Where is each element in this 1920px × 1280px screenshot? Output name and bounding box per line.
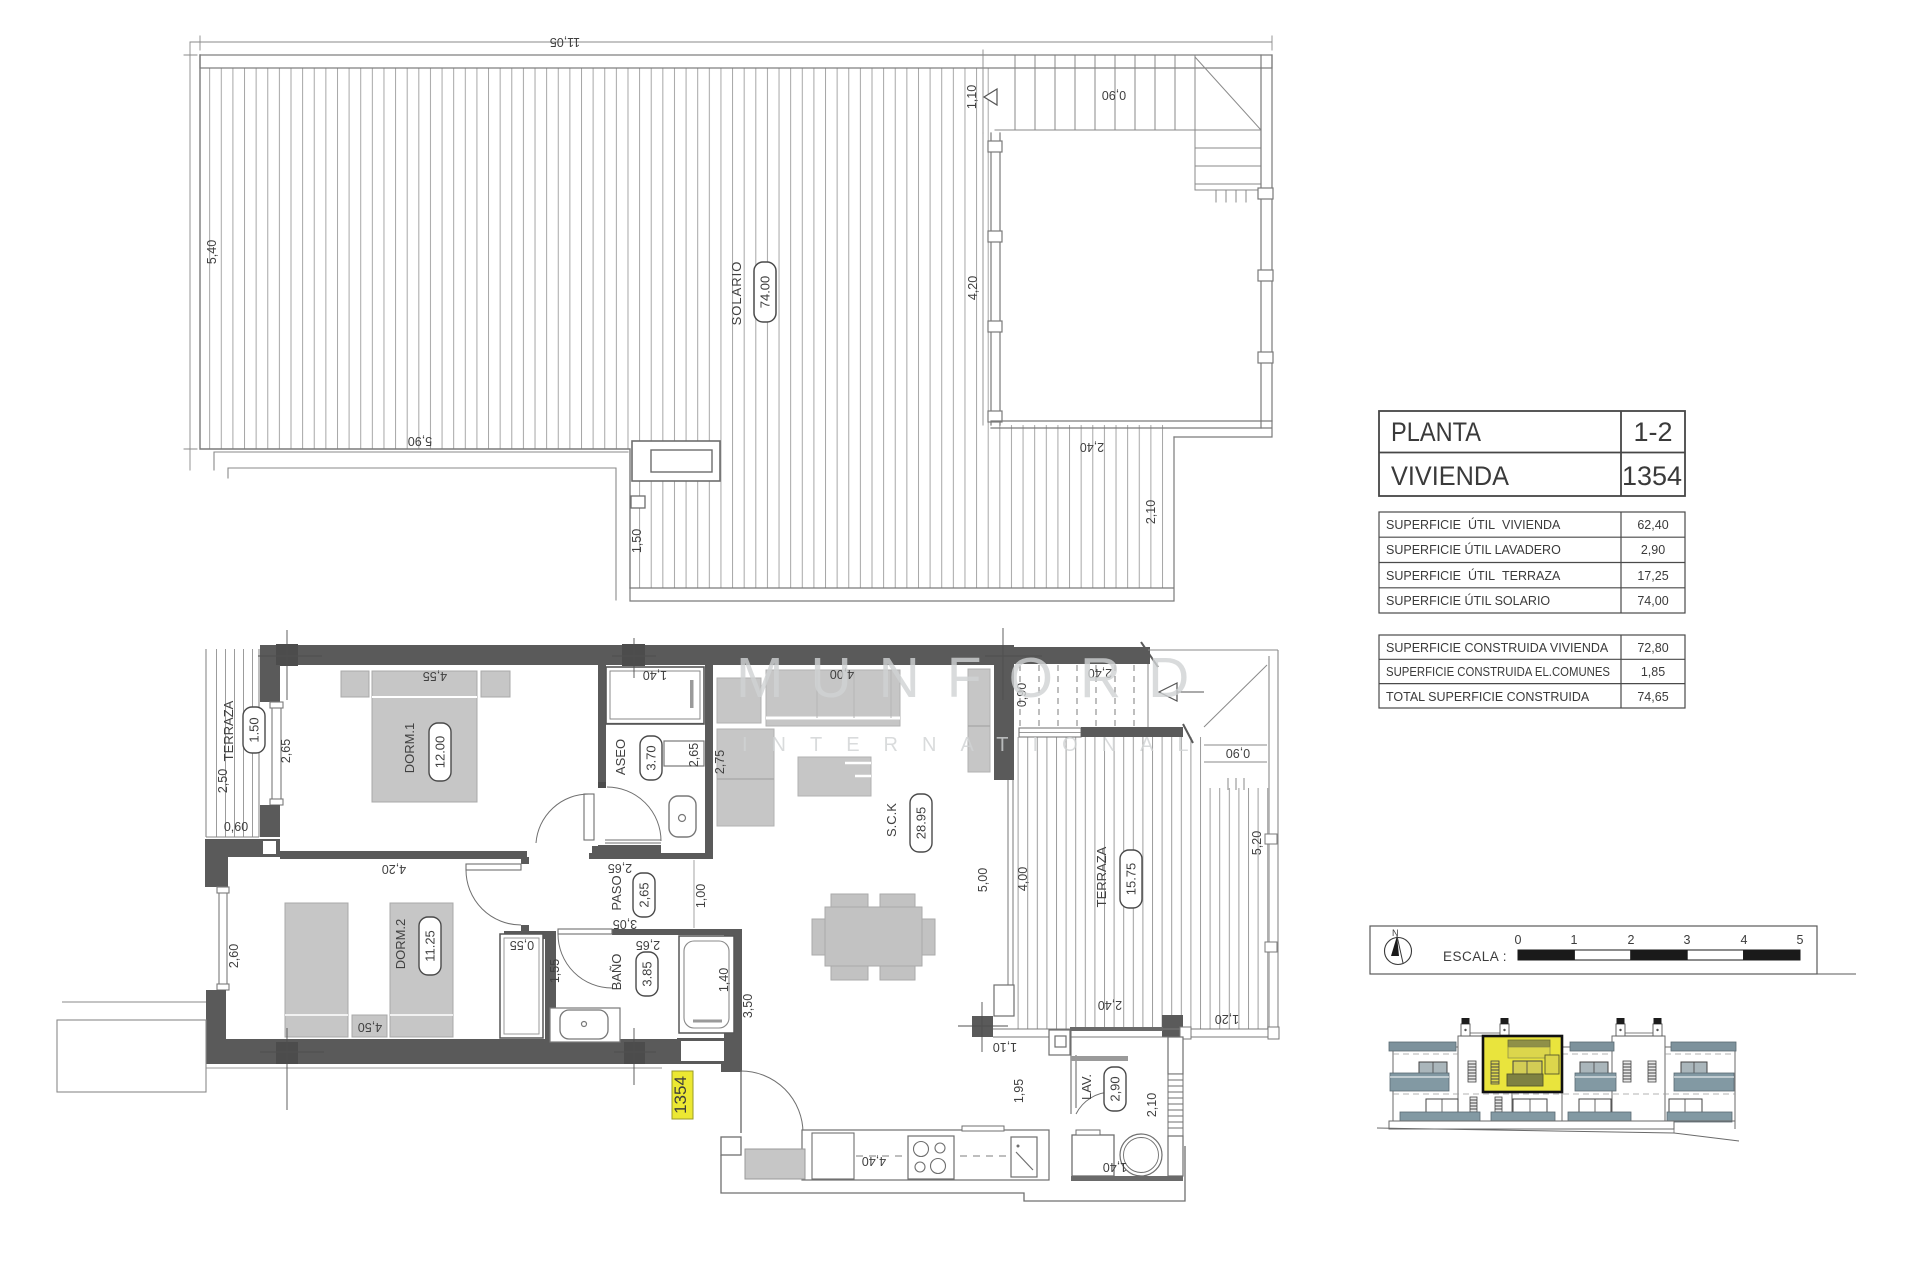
- svg-text:3,05: 3,05: [613, 917, 637, 931]
- svg-text:MUNFORD: MUNFORD: [736, 646, 1216, 710]
- svg-text:ASEO: ASEO: [613, 739, 628, 775]
- svg-text:1,10: 1,10: [965, 85, 979, 109]
- svg-text:2,90: 2,90: [1108, 1076, 1123, 1101]
- svg-text:4,20: 4,20: [382, 862, 406, 876]
- svg-text:TERRAZA: TERRAZA: [221, 700, 236, 761]
- svg-text:5,90: 5,90: [408, 434, 432, 448]
- svg-text:15.75: 15.75: [1124, 863, 1139, 896]
- svg-text:SOLARIO: SOLARIO: [729, 261, 744, 326]
- svg-text:BAÑO: BAÑO: [609, 954, 624, 991]
- svg-text:28.95: 28.95: [914, 807, 929, 840]
- svg-text:11,05: 11,05: [550, 35, 580, 49]
- svg-text:62,40: 62,40: [1637, 518, 1668, 532]
- svg-text:1,10: 1,10: [993, 1040, 1017, 1054]
- svg-text:0,60: 0,60: [224, 820, 248, 834]
- svg-text:3: 3: [1684, 933, 1691, 947]
- svg-text:1,20: 1,20: [1215, 1012, 1239, 1026]
- svg-text:72,80: 72,80: [1637, 641, 1668, 655]
- svg-text:2,65: 2,65: [687, 743, 701, 767]
- svg-text:LAV.: LAV.: [1079, 1074, 1094, 1100]
- svg-text:2,65: 2,65: [637, 882, 652, 907]
- svg-text:3,50: 3,50: [741, 994, 755, 1018]
- svg-text:SUPERFICIE ÚTIL LAVADERO: SUPERFICIE ÚTIL LAVADERO: [1386, 542, 1561, 557]
- svg-text:0,90: 0,90: [1226, 746, 1250, 760]
- svg-text:TOTAL SUPERFICIE CONSTRUIDA: TOTAL SUPERFICIE CONSTRUIDA: [1386, 690, 1590, 704]
- svg-text:ESCALA :: ESCALA :: [1443, 949, 1507, 964]
- svg-text:1,85: 1,85: [1641, 665, 1665, 679]
- svg-text:2,65: 2,65: [608, 861, 632, 875]
- svg-text:SUPERFICIE ÚTIL VIVIENDA: SUPERFICIE ÚTIL VIVIENDA: [1386, 517, 1561, 532]
- svg-text:0: 0: [1515, 933, 1522, 947]
- svg-text:2: 2: [1628, 933, 1635, 947]
- svg-text:1,50: 1,50: [630, 529, 644, 553]
- svg-text:1354: 1354: [671, 1076, 690, 1114]
- svg-text:VIVIENDA: VIVIENDA: [1391, 461, 1509, 491]
- svg-text:2,75: 2,75: [713, 750, 727, 774]
- svg-text:4,00: 4,00: [1016, 867, 1030, 891]
- svg-text:4,50: 4,50: [358, 1020, 382, 1034]
- svg-text:0,90: 0,90: [1102, 88, 1126, 102]
- svg-text:2,60: 2,60: [227, 944, 241, 968]
- svg-text:2,90: 2,90: [1641, 543, 1665, 557]
- svg-text:2,40: 2,40: [1098, 998, 1122, 1012]
- svg-text:S.C.K: S.C.K: [884, 803, 899, 837]
- svg-text:SUPERFICIE ÚTIL TERRAZA: SUPERFICIE ÚTIL TERRAZA: [1386, 568, 1561, 583]
- svg-text:4,40: 4,40: [862, 1154, 886, 1168]
- svg-text:2,10: 2,10: [1144, 500, 1158, 524]
- svg-text:17,25: 17,25: [1637, 569, 1668, 583]
- svg-text:1,40: 1,40: [643, 668, 667, 682]
- svg-text:2,40: 2,40: [1080, 440, 1104, 454]
- svg-text:12.00: 12.00: [433, 736, 448, 769]
- svg-text:PASO: PASO: [609, 875, 624, 910]
- svg-text:2,50: 2,50: [216, 769, 230, 793]
- svg-text:74.00: 74.00: [758, 276, 773, 309]
- svg-text:2,65: 2,65: [279, 739, 293, 763]
- svg-text:5,20: 5,20: [1250, 831, 1264, 855]
- svg-text:1,00: 1,00: [694, 884, 708, 908]
- svg-text:INTERNATIONAL: INTERNATIONAL: [742, 734, 1213, 756]
- svg-text:74,65: 74,65: [1637, 690, 1668, 704]
- svg-text:SUPERFICIE ÚTIL SOLARIO: SUPERFICIE ÚTIL SOLARIO: [1386, 593, 1550, 608]
- svg-text:2,65: 2,65: [636, 938, 660, 952]
- svg-text:1-2: 1-2: [1633, 417, 1672, 447]
- svg-text:PLANTA: PLANTA: [1391, 417, 1481, 447]
- svg-text:SUPERFICIE CONSTRUIDA EL.COMUN: SUPERFICIE CONSTRUIDA EL.COMUNES: [1386, 665, 1610, 679]
- svg-text:0,55: 0,55: [510, 938, 534, 952]
- svg-text:DORM.1: DORM.1: [402, 723, 417, 774]
- svg-text:1,55: 1,55: [548, 959, 562, 983]
- svg-text:5: 5: [1797, 933, 1804, 947]
- svg-text:1,95: 1,95: [1012, 1079, 1026, 1103]
- svg-text:1354: 1354: [1622, 461, 1682, 491]
- svg-text:SUPERFICIE CONSTRUIDA VIVIENDA: SUPERFICIE CONSTRUIDA VIVIENDA: [1386, 641, 1609, 655]
- svg-text:1,40: 1,40: [717, 968, 731, 992]
- svg-text:DORM.2: DORM.2: [393, 919, 408, 970]
- svg-text:1.50: 1.50: [247, 717, 262, 742]
- svg-text:4: 4: [1741, 933, 1748, 947]
- svg-text:TERRAZA: TERRAZA: [1094, 846, 1109, 907]
- svg-text:1,40: 1,40: [1103, 1160, 1127, 1174]
- svg-text:3.70: 3.70: [644, 745, 659, 770]
- svg-text:N: N: [1392, 928, 1399, 938]
- svg-text:1: 1: [1571, 933, 1578, 947]
- svg-text:11.25: 11.25: [423, 930, 438, 962]
- svg-text:3.85: 3.85: [640, 961, 655, 986]
- svg-text:2,10: 2,10: [1145, 1093, 1159, 1117]
- svg-text:5,00: 5,00: [976, 868, 990, 892]
- svg-text:4,55: 4,55: [423, 669, 447, 683]
- svg-text:74,00: 74,00: [1637, 594, 1668, 608]
- svg-text:4,20: 4,20: [966, 276, 980, 300]
- svg-text:5,40: 5,40: [205, 240, 219, 264]
